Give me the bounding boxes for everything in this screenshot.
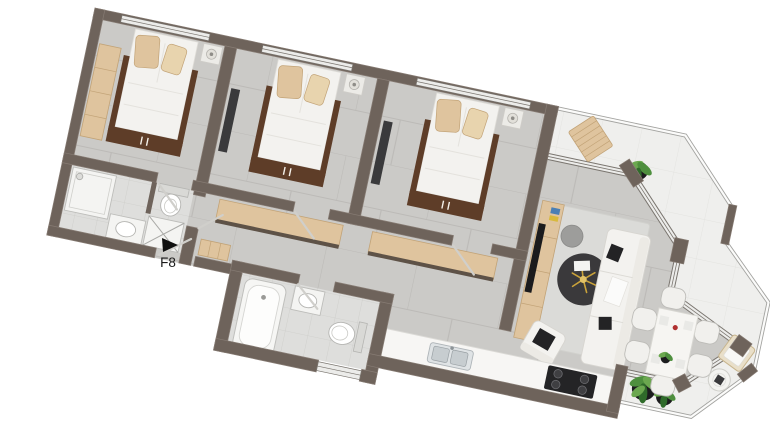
- nightstand: [200, 43, 222, 65]
- floor-plan-canvas: F8: [0, 0, 770, 430]
- nightstand: [343, 74, 365, 96]
- magazine: [574, 261, 590, 272]
- nightstand: [502, 107, 524, 129]
- floor-plan: F8: [0, 0, 770, 430]
- unit-label: F8: [160, 255, 176, 270]
- place-setting: [659, 315, 670, 326]
- throw-pillow: [599, 317, 612, 330]
- apartment-plan: [31, 8, 770, 430]
- shower: [64, 167, 116, 219]
